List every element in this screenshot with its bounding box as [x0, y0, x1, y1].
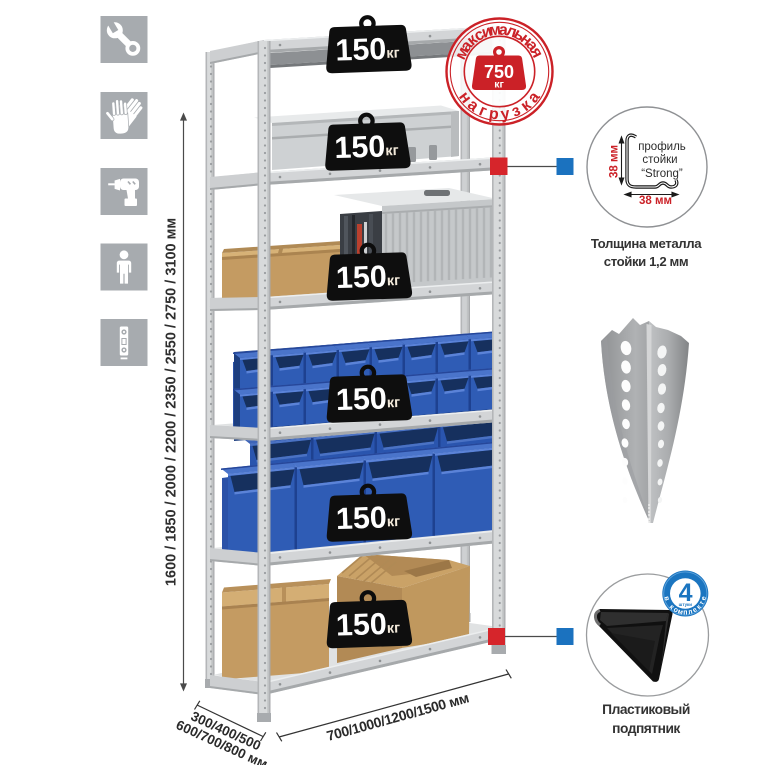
svg-text:стойки: стойки	[642, 154, 677, 166]
svg-text:“Strong”: “Strong”	[641, 168, 683, 180]
svg-text:кг: кг	[385, 143, 399, 159]
svg-text:38 мм: 38 мм	[639, 195, 672, 207]
svg-text:подпятник: подпятник	[612, 721, 680, 736]
svg-text:кг: кг	[386, 45, 400, 61]
svg-text:150: 150	[334, 129, 386, 165]
svg-text:38 мм: 38 мм	[609, 145, 621, 178]
svg-text:Пластиковый: Пластиковый	[602, 702, 690, 717]
svg-text:кг: кг	[387, 514, 401, 530]
svg-text:профиль: профиль	[638, 141, 686, 153]
svg-text:штуки: штуки	[679, 602, 693, 607]
svg-text:кг: кг	[387, 273, 401, 289]
svg-text:кг: кг	[387, 620, 401, 636]
svg-text:кг: кг	[387, 395, 401, 411]
svg-text:150: 150	[335, 32, 387, 68]
svg-text:Толщина металла: Толщина металла	[591, 236, 702, 251]
svg-text:150: 150	[335, 607, 387, 643]
svg-text:150: 150	[335, 381, 387, 417]
svg-text:кг: кг	[494, 79, 504, 91]
svg-text:150: 150	[335, 500, 387, 536]
svg-text:1600 / 1850 / 2000 / 2200 / 23: 1600 / 1850 / 2000 / 2200 / 2350 / 2550 …	[164, 218, 180, 586]
svg-text:150: 150	[335, 259, 387, 295]
svg-text:стойки 1,2 мм: стойки 1,2 мм	[604, 254, 688, 269]
